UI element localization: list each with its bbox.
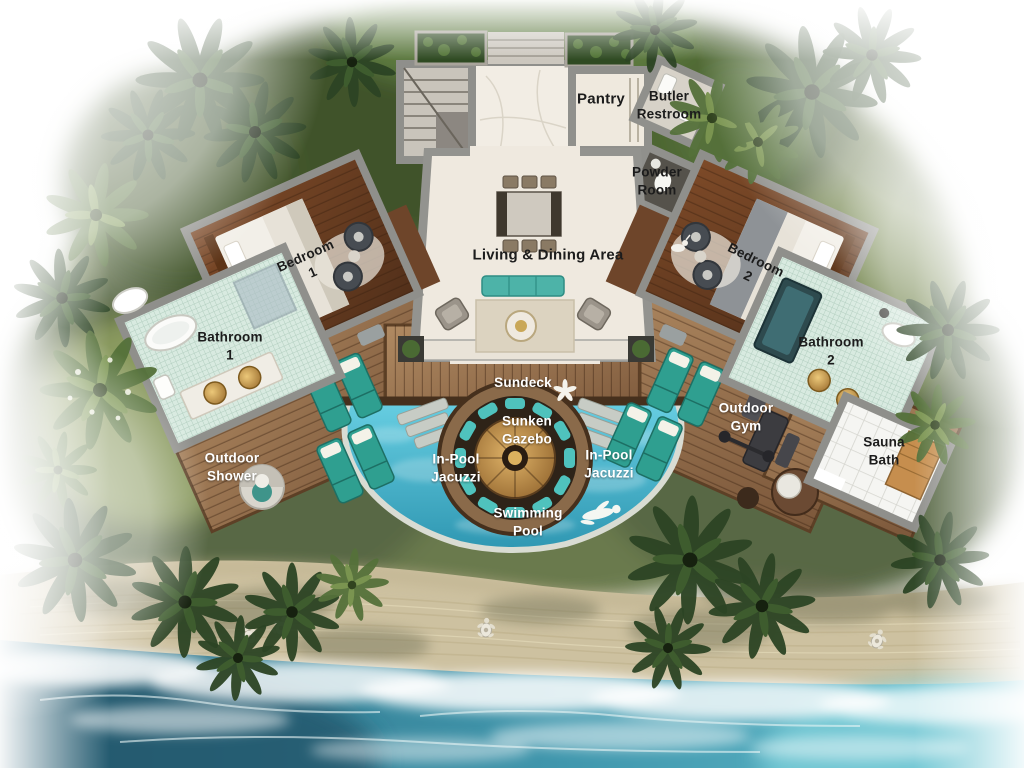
sunken-gazebo [439,382,591,534]
floor-plan-rendering [0,0,1024,768]
dining-table [497,176,561,252]
round-daybed-left [240,465,284,509]
sofa [482,276,564,296]
villa-floor-plan: Pantry Butler Restroom Powder Room Livin… [0,0,1024,768]
